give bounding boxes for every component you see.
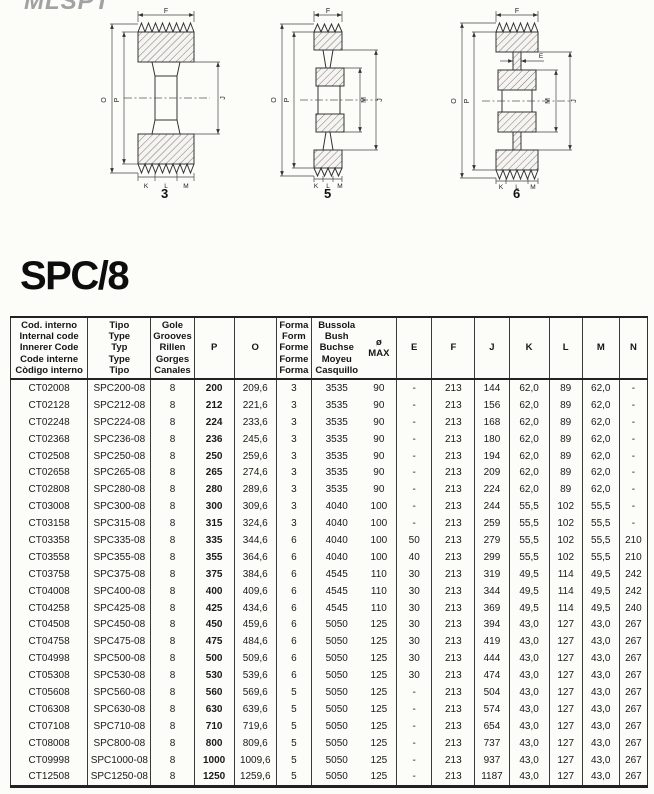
table-cell: SPC800-08 (88, 735, 151, 752)
table-cell: - (397, 464, 432, 481)
table-cell: 55,5 (509, 498, 549, 515)
table-cell: 267 (619, 718, 647, 735)
table-cell: - (619, 515, 647, 532)
table-cell: 6 (276, 549, 311, 566)
column-header: M (582, 317, 619, 379)
table-cell: 560 (194, 684, 234, 701)
dim-label-f: F (326, 8, 330, 15)
table-cell: CT09998 (11, 752, 88, 769)
table-cell: 213 (432, 735, 475, 752)
dim-label-m-hub: M (361, 97, 368, 103)
table-cell: - (397, 752, 432, 769)
table-cell: 409,6 (234, 583, 276, 600)
table-cell: 3535 (311, 464, 361, 481)
table-row: CT02658SPC265-088265274,63353590-2132096… (11, 464, 648, 481)
table-cell: 250 (194, 448, 234, 465)
table-cell: 210 (619, 532, 647, 549)
table-cell: 3535 (311, 448, 361, 465)
table-cell: 539,6 (234, 667, 276, 684)
table-cell: 8 (151, 431, 194, 448)
table-cell: - (397, 448, 432, 465)
table-cell: 475 (194, 633, 234, 650)
table-cell: SPC200-08 (88, 379, 151, 397)
column-header: Gole Grooves Rillen Gorges Canales (151, 317, 194, 379)
table-cell: 5 (276, 701, 311, 718)
table-cell: 5050 (311, 752, 361, 769)
table-cell: 127 (549, 650, 582, 667)
table-cell: 213 (432, 752, 475, 769)
table-cell: 5 (276, 718, 311, 735)
table-cell: 200 (194, 379, 234, 397)
dim-label-f: F (164, 8, 168, 15)
table-cell: 6 (276, 566, 311, 583)
table-cell: 419 (475, 633, 509, 650)
column-header: F (432, 317, 475, 379)
column-header: P (194, 317, 234, 379)
table-cell: 127 (549, 735, 582, 752)
table-cell: - (397, 768, 432, 786)
table-cell: 355 (194, 549, 234, 566)
table-cell: 62,0 (582, 379, 619, 397)
table-cell: 49,5 (582, 566, 619, 583)
table-cell: - (397, 431, 432, 448)
table-cell: 8 (151, 532, 194, 549)
table-cell: 110 (362, 600, 397, 617)
table-cell: 630 (194, 701, 234, 718)
table-cell: 90 (362, 397, 397, 414)
table-cell: - (397, 481, 432, 498)
table-cell: 62,0 (582, 414, 619, 431)
table-cell: 62,0 (509, 379, 549, 397)
table-row: CT04508SPC450-088450459,6650501253021339… (11, 616, 648, 633)
table-cell: 30 (397, 633, 432, 650)
table-cell: 100 (362, 515, 397, 532)
table-cell: SPC224-08 (88, 414, 151, 431)
table-cell: 49,5 (582, 600, 619, 617)
table-cell: 6 (276, 650, 311, 667)
table-cell: 8 (151, 397, 194, 414)
pulley-diagram-form-3: F O P J K L M (90, 6, 265, 195)
table-cell: 43,0 (509, 768, 549, 786)
table-cell: SPC212-08 (88, 397, 151, 414)
table-cell: 49,5 (509, 566, 549, 583)
table-cell: CT03558 (11, 549, 88, 566)
table-cell: 102 (549, 498, 582, 515)
table-cell: CT02128 (11, 397, 88, 414)
table-cell: 110 (362, 583, 397, 600)
table-cell: 1187 (475, 768, 509, 786)
table-cell: 89 (549, 481, 582, 498)
table-cell: 3 (276, 464, 311, 481)
table-cell: 209 (475, 464, 509, 481)
table-cell: 5050 (311, 616, 361, 633)
table-cell: SPC250-08 (88, 448, 151, 465)
table-cell: 62,0 (509, 397, 549, 414)
table-cell: 89 (549, 448, 582, 465)
table-cell: 4040 (311, 549, 361, 566)
table-body: CT02008SPC200-088200209,63353590-2131446… (11, 379, 648, 787)
table-cell: 89 (549, 431, 582, 448)
table-cell: 425 (194, 600, 234, 617)
table-cell: CT02368 (11, 431, 88, 448)
table-cell: 127 (549, 616, 582, 633)
table-cell: 102 (549, 515, 582, 532)
table-cell: 127 (549, 701, 582, 718)
table-cell: 8 (151, 481, 194, 498)
table-cell: 213 (432, 414, 475, 431)
table-cell: 8 (151, 735, 194, 752)
table-cell: 324,6 (234, 515, 276, 532)
table-cell: - (397, 735, 432, 752)
table-cell: 55,5 (582, 532, 619, 549)
table-cell: 6 (276, 667, 311, 684)
table-cell: 3 (276, 481, 311, 498)
dim-label-j: J (571, 99, 578, 103)
catalog-table: Cod. interno Internal code Innerer Code … (10, 316, 648, 788)
table-cell: - (397, 397, 432, 414)
table-cell: 242 (619, 583, 647, 600)
pulley-diagram-form-6: F E O P M J K L M (438, 6, 603, 195)
table-cell: CT06308 (11, 701, 88, 718)
table-cell: 43,0 (582, 768, 619, 786)
table-cell: 43,0 (582, 735, 619, 752)
table-row: CT03158SPC315-088315324,634040100-213259… (11, 515, 648, 532)
dim-label-k: K (314, 183, 319, 190)
table-cell: 110 (362, 566, 397, 583)
table-cell: 5050 (311, 735, 361, 752)
table-cell: 639,6 (234, 701, 276, 718)
table-cell: 62,0 (509, 481, 549, 498)
table-cell: 394 (475, 616, 509, 633)
table-cell: 213 (432, 616, 475, 633)
table-cell: - (619, 431, 647, 448)
table-cell: 1000 (194, 752, 234, 769)
table-cell: 43,0 (582, 718, 619, 735)
table-cell: 43,0 (582, 667, 619, 684)
table-cell: 43,0 (509, 684, 549, 701)
table-cell: 49,5 (509, 600, 549, 617)
table-cell: CT02658 (11, 464, 88, 481)
table-cell: 90 (362, 379, 397, 397)
table-cell: 127 (549, 684, 582, 701)
table-row: CT02508SPC250-088250259,63353590-2131946… (11, 448, 648, 465)
table-cell: 8 (151, 684, 194, 701)
table-cell: 210 (619, 549, 647, 566)
table-cell: 43,0 (509, 633, 549, 650)
table-cell: 55,5 (509, 549, 549, 566)
dim-label-m: M (183, 183, 188, 190)
column-header: J (475, 317, 509, 379)
table-cell: 114 (549, 583, 582, 600)
table-cell: 30 (397, 667, 432, 684)
pulley-diagram-form-5: F O P M J K L M (256, 6, 406, 195)
table-cell: 127 (549, 667, 582, 684)
table-cell: 43,0 (509, 701, 549, 718)
table-cell: 335 (194, 532, 234, 549)
table-cell: 1009,6 (234, 752, 276, 769)
table-cell: 102 (549, 532, 582, 549)
table-cell: SPC400-08 (88, 583, 151, 600)
pulley-drawing-6: F E O P M J K L M (438, 6, 603, 190)
table-cell: 55,5 (509, 515, 549, 532)
table-cell: 267 (619, 684, 647, 701)
table-cell: 474 (475, 667, 509, 684)
table-cell: SPC265-08 (88, 464, 151, 481)
table-cell: CT03758 (11, 566, 88, 583)
table-cell: 3 (276, 414, 311, 431)
column-header: Tipo Type Typ Type Tipo (88, 317, 151, 379)
table-cell: 259 (475, 515, 509, 532)
table-cell: 654 (475, 718, 509, 735)
table-row: CT04008SPC400-088400409,6645451103021334… (11, 583, 648, 600)
table-cell: 5050 (311, 718, 361, 735)
table-cell: 5050 (311, 650, 361, 667)
table-cell: 3 (276, 379, 311, 397)
table-cell: 5050 (311, 701, 361, 718)
table-cell: 49,5 (582, 583, 619, 600)
table-cell: 114 (549, 566, 582, 583)
dim-label-j: J (377, 98, 384, 102)
table-cell: 267 (619, 616, 647, 633)
dim-label-m-hub: M (545, 98, 552, 104)
column-header: Cod. interno Internal code Innerer Code … (11, 317, 88, 379)
table-cell: 43,0 (582, 633, 619, 650)
table-cell: - (397, 414, 432, 431)
table-cell: 30 (397, 650, 432, 667)
table-cell: 8 (151, 616, 194, 633)
table-cell: SPC530-08 (88, 667, 151, 684)
table-cell: 245,6 (234, 431, 276, 448)
table-cell: SPC355-08 (88, 549, 151, 566)
table-cell: 102 (549, 549, 582, 566)
table-cell: 43,0 (509, 667, 549, 684)
table-cell: 114 (549, 600, 582, 617)
table-cell: 213 (432, 566, 475, 583)
table-cell: 4040 (311, 498, 361, 515)
table-cell: 242 (619, 566, 647, 583)
table-cell: CT12508 (11, 768, 88, 786)
table-cell: 309,6 (234, 498, 276, 515)
table-cell: 8 (151, 667, 194, 684)
table-cell: 30 (397, 616, 432, 633)
dim-label-e: E (539, 53, 544, 60)
table-cell: CT04998 (11, 650, 88, 667)
table-cell: - (397, 718, 432, 735)
table-cell: 236 (194, 431, 234, 448)
table-cell: CT04758 (11, 633, 88, 650)
table-cell: 500 (194, 650, 234, 667)
table-cell: 62,0 (582, 448, 619, 465)
table-cell: 800 (194, 735, 234, 752)
table-row: CT03758SPC375-088375384,6645451103021331… (11, 566, 648, 583)
table-cell: SPC335-08 (88, 532, 151, 549)
table-cell: 737 (475, 735, 509, 752)
table-cell: 55,5 (582, 515, 619, 532)
table-cell: CT04508 (11, 616, 88, 633)
table-cell: CT02248 (11, 414, 88, 431)
table-cell: 62,0 (582, 431, 619, 448)
table-row: CT08008SPC800-088800809,655050125-213737… (11, 735, 648, 752)
table-cell: 55,5 (582, 549, 619, 566)
table-cell: SPC630-08 (88, 701, 151, 718)
table-cell: 213 (432, 448, 475, 465)
table-row: CT03008SPC300-088300309,634040100-213244… (11, 498, 648, 515)
table-cell: - (397, 379, 432, 397)
table-cell: 62,0 (582, 397, 619, 414)
table-cell: 8 (151, 701, 194, 718)
table-cell: 8 (151, 549, 194, 566)
table-cell: 43,0 (582, 684, 619, 701)
table-cell: 3 (276, 448, 311, 465)
table-cell: 213 (432, 464, 475, 481)
table-cell: 267 (619, 768, 647, 786)
table-cell: 213 (432, 549, 475, 566)
table-row: CT07108SPC710-088710719,655050125-213654… (11, 718, 648, 735)
table-cell: - (619, 448, 647, 465)
table-cell: 267 (619, 633, 647, 650)
table-cell: 50 (397, 532, 432, 549)
column-header: N (619, 317, 647, 379)
dim-label-p: P (464, 98, 471, 103)
table-cell: 8 (151, 752, 194, 769)
table-cell: 125 (362, 718, 397, 735)
table-cell: SPC1000-08 (88, 752, 151, 769)
table-cell: 90 (362, 464, 397, 481)
table-cell: - (619, 397, 647, 414)
table-row: CT04758SPC475-088475484,6650501253021341… (11, 633, 648, 650)
table-cell: SPC280-08 (88, 481, 151, 498)
table-cell: 8 (151, 566, 194, 583)
table-cell: 3535 (311, 397, 361, 414)
column-header: O (234, 317, 276, 379)
table-row: CT05308SPC530-088530539,6650501253021347… (11, 667, 648, 684)
table-cell: 6 (276, 583, 311, 600)
table-cell: 100 (362, 498, 397, 515)
table-row: CT09998SPC1000-08810001009,655050125-213… (11, 752, 648, 769)
table-cell: 3 (276, 515, 311, 532)
table-cell: 127 (549, 752, 582, 769)
table-cell: 127 (549, 718, 582, 735)
table-cell: SPC1250-08 (88, 768, 151, 786)
table-cell: 6 (276, 600, 311, 617)
table-cell: 49,5 (509, 583, 549, 600)
table-cell: - (397, 515, 432, 532)
table-cell: 90 (362, 414, 397, 431)
table-cell: 344 (475, 583, 509, 600)
table-cell: 224 (194, 414, 234, 431)
table-cell: 213 (432, 379, 475, 397)
table-cell: 4545 (311, 600, 361, 617)
table-cell: 574 (475, 701, 509, 718)
table-cell: SPC500-08 (88, 650, 151, 667)
table-row: CT12508SPC1250-08812501259,655050125-213… (11, 768, 648, 786)
table-cell: 213 (432, 633, 475, 650)
table-cell: SPC375-08 (88, 566, 151, 583)
table-cell: 213 (432, 768, 475, 786)
table-cell: 450 (194, 616, 234, 633)
table-cell: 319 (475, 566, 509, 583)
table-cell: 6 (276, 616, 311, 633)
table-cell: 213 (432, 667, 475, 684)
table-cell: 213 (432, 718, 475, 735)
table-cell: 267 (619, 667, 647, 684)
table-cell: CT03008 (11, 498, 88, 515)
table-cell: 224 (475, 481, 509, 498)
table-cell: 213 (432, 600, 475, 617)
table-cell: 125 (362, 684, 397, 701)
table-cell: 213 (432, 481, 475, 498)
table-cell: 259,6 (234, 448, 276, 465)
table-cell: 30 (397, 583, 432, 600)
table-cell: 89 (549, 397, 582, 414)
table-cell: 89 (549, 414, 582, 431)
table-cell: SPC710-08 (88, 718, 151, 735)
table-cell: 509,6 (234, 650, 276, 667)
table-cell: 4040 (311, 515, 361, 532)
column-header: Bussola Bush Buchse Moyeu Casquillo (311, 317, 361, 379)
table-row: CT02128SPC212-088212221,63353590-2131566… (11, 397, 648, 414)
table-cell: - (619, 414, 647, 431)
table-cell: CT02808 (11, 481, 88, 498)
table-cell: 3535 (311, 379, 361, 397)
table-cell: 62,0 (582, 481, 619, 498)
table-cell: - (619, 498, 647, 515)
table-cell: 364,6 (234, 549, 276, 566)
table-cell: 459,6 (234, 616, 276, 633)
table-cell: SPC560-08 (88, 684, 151, 701)
table-cell: CT03158 (11, 515, 88, 532)
table-cell: 384,6 (234, 566, 276, 583)
table-cell: SPC425-08 (88, 600, 151, 617)
dim-label-k: K (144, 183, 149, 190)
column-header: L (549, 317, 582, 379)
column-header: K (509, 317, 549, 379)
table-cell: 344,6 (234, 532, 276, 549)
table-cell: 100 (362, 532, 397, 549)
table-cell: - (397, 498, 432, 515)
table-cell: 5 (276, 684, 311, 701)
table-cell: 8 (151, 379, 194, 397)
table-cell: 1259,6 (234, 768, 276, 786)
dim-label-j: J (220, 96, 227, 100)
table-cell: 809,6 (234, 735, 276, 752)
table-cell: 5 (276, 752, 311, 769)
table-cell: 369 (475, 600, 509, 617)
pulley-drawing-3: F O P J K L M (90, 6, 265, 190)
table-row: CT02248SPC224-088224233,63353590-2131686… (11, 414, 648, 431)
table-cell: 127 (549, 768, 582, 786)
table-cell: 6 (276, 633, 311, 650)
table-row: CT03358SPC335-088335344,6640401005021327… (11, 532, 648, 549)
dim-label-p: P (284, 97, 291, 102)
table-cell: CT02008 (11, 379, 88, 397)
table-row: CT02368SPC236-088236245,63353590-2131806… (11, 431, 648, 448)
table-cell: CT05608 (11, 684, 88, 701)
dim-label-k: K (499, 184, 504, 190)
table-cell: 569,6 (234, 684, 276, 701)
table-row: CT05608SPC560-088560569,655050125-213504… (11, 684, 648, 701)
table-cell: 43,0 (582, 701, 619, 718)
table-cell: 5 (276, 735, 311, 752)
table-cell: 213 (432, 397, 475, 414)
table-header-row: Cod. interno Internal code Innerer Code … (11, 317, 648, 379)
dim-label-o: O (451, 98, 458, 104)
table-cell: CT03358 (11, 532, 88, 549)
table-cell: 212 (194, 397, 234, 414)
table-cell: 5050 (311, 768, 361, 786)
table-cell: 125 (362, 667, 397, 684)
table-cell: 8 (151, 414, 194, 431)
